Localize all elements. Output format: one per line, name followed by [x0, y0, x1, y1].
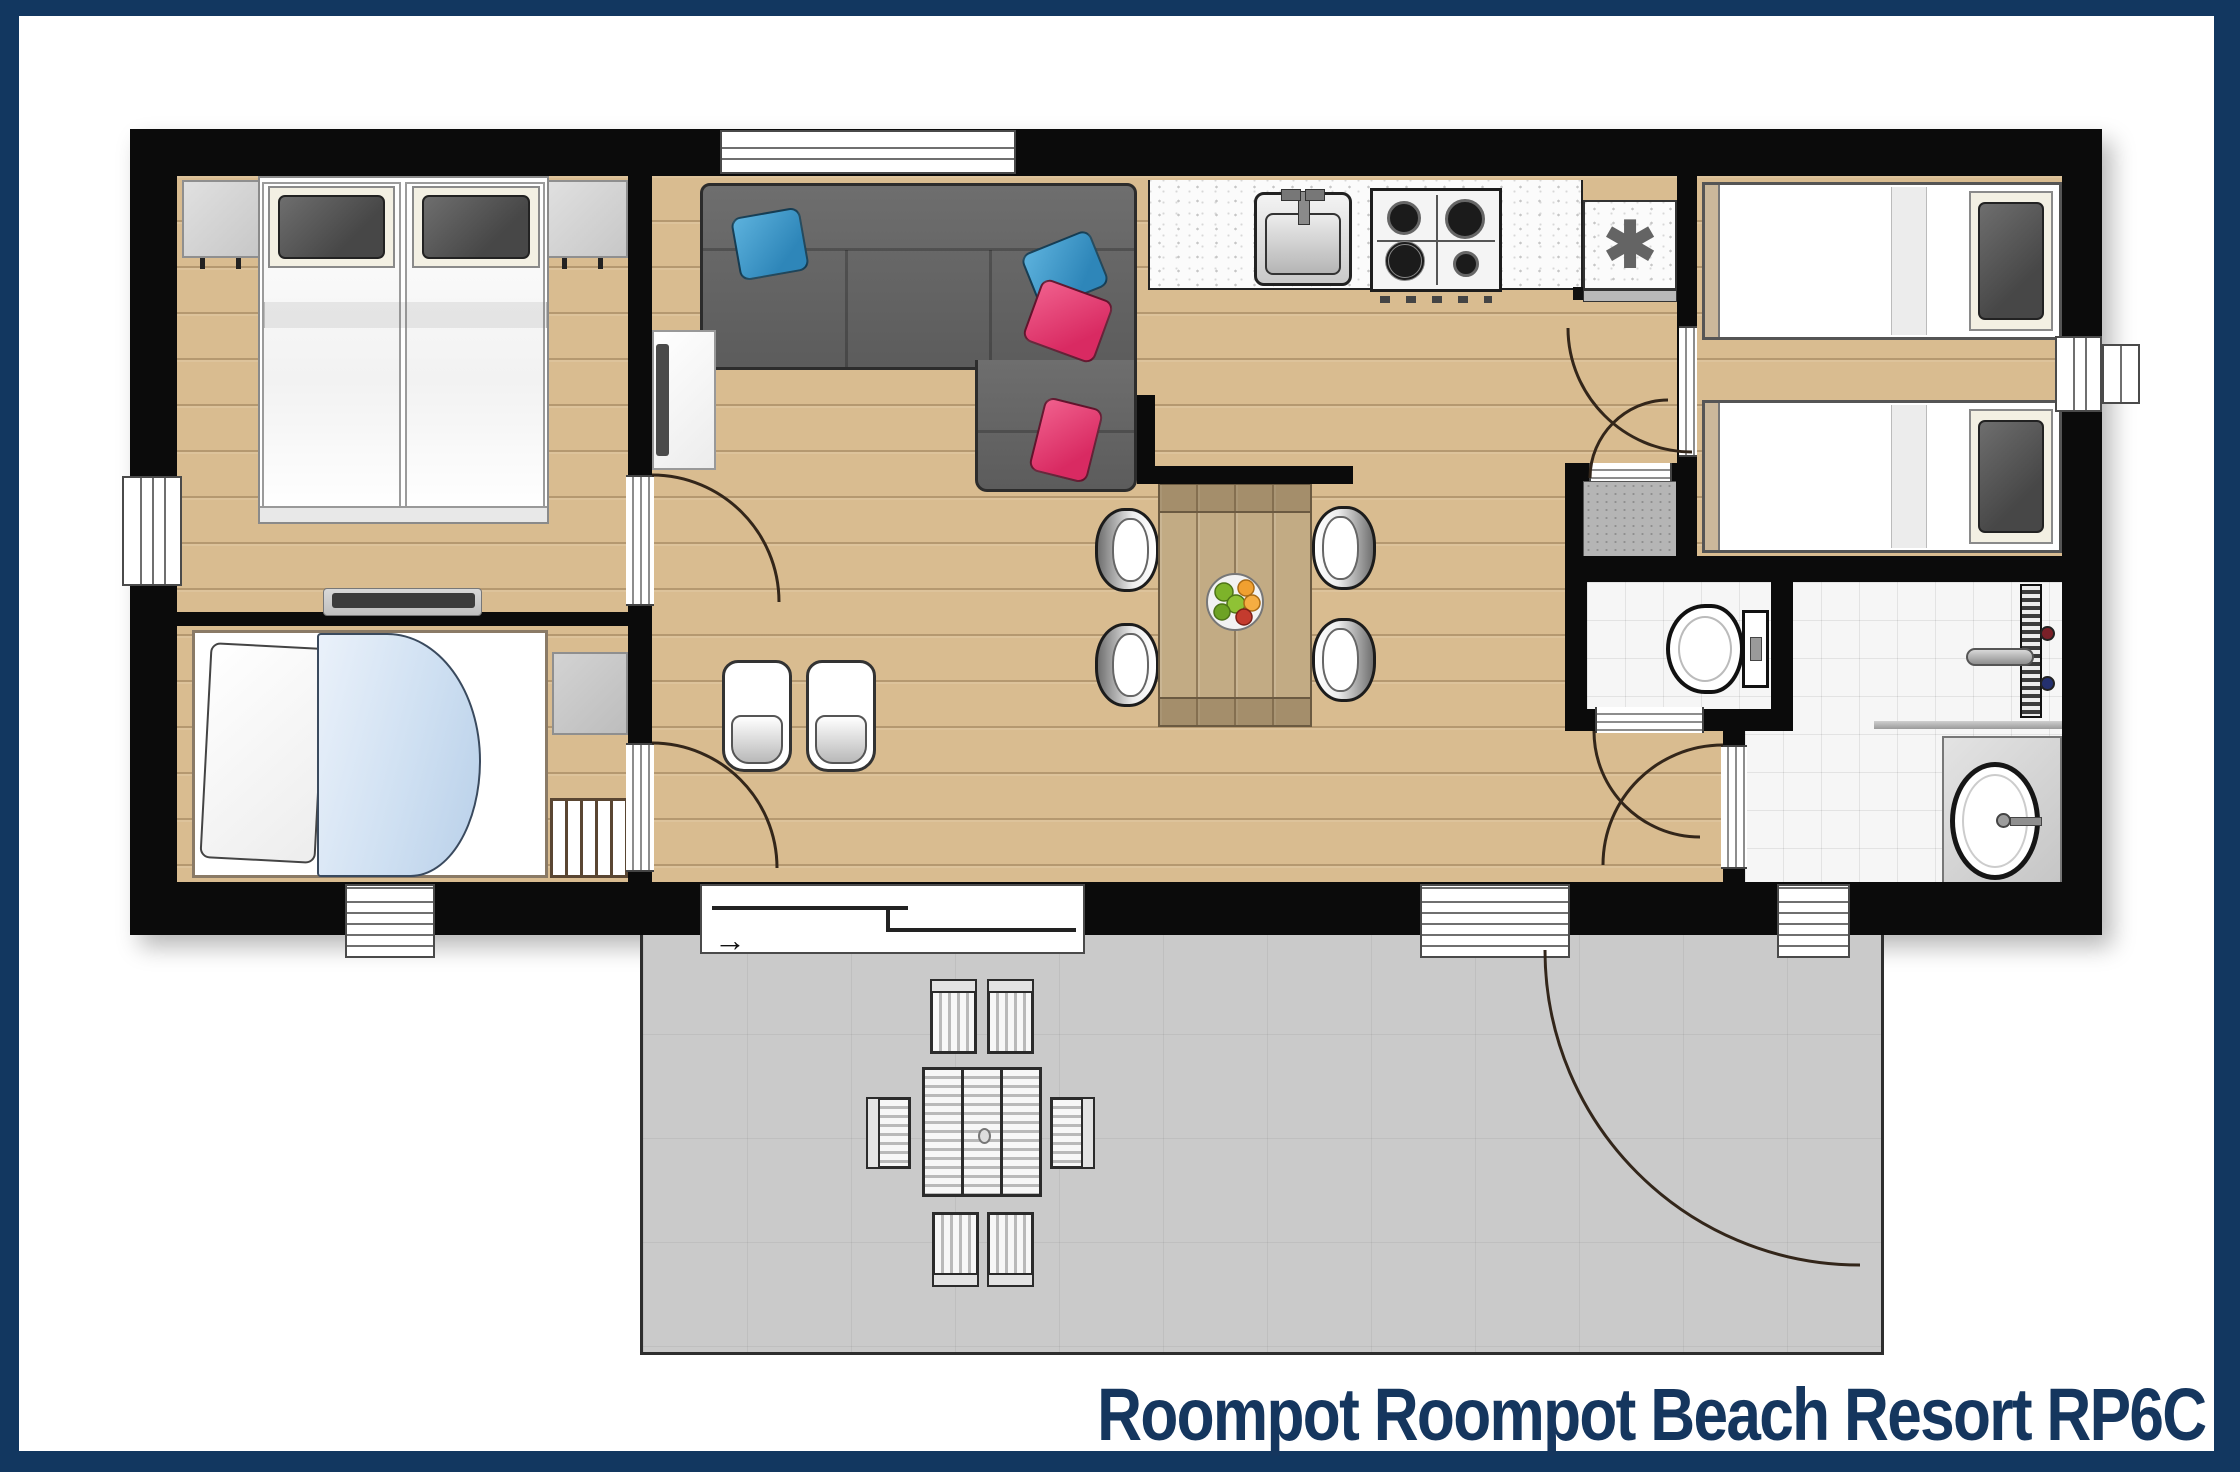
burner-icon [1453, 251, 1479, 277]
stove-knobs [1380, 296, 1492, 303]
sliding-door: → [700, 884, 1085, 954]
cabinet-bedroom3 [552, 652, 628, 735]
terrace-chair-bottom-1 [932, 1212, 979, 1286]
terrace-chair-bottom-2 [987, 1212, 1034, 1286]
window-bottom-bedroom3 [345, 884, 435, 958]
wall-bedrooms-bathroom [1565, 556, 2102, 582]
shower-handle [1966, 648, 2034, 666]
terrace-chair-right [1050, 1097, 1094, 1169]
door-hall-kitchen [1679, 326, 1697, 457]
storage-closet-floor [1583, 481, 1678, 567]
double-bed-bedroom1 [258, 176, 549, 524]
terrace-table [922, 1067, 1042, 1197]
dining-chair-right-1 [1312, 506, 1376, 590]
door-bedroom3 [626, 743, 654, 872]
burner-icon [1445, 199, 1485, 239]
lounge-chair-1 [722, 660, 792, 772]
window-bottom-dining [1420, 884, 1570, 958]
shower-glass-partition [1874, 721, 2062, 729]
dining-chair-right-2 [1312, 618, 1376, 702]
bunk-ladder-icon [550, 798, 628, 878]
single-bed-bedroom5 [1702, 400, 2062, 553]
refrigerator-front [1583, 290, 1677, 302]
terrace-chair-left [867, 1097, 911, 1169]
floor-plan-page: → [0, 0, 2240, 1472]
terrace-chair-top-2 [987, 980, 1034, 1054]
dining-chair-left-2 [1095, 623, 1159, 707]
dining-chair-left-1 [1095, 508, 1159, 592]
burner-icon [1387, 201, 1421, 235]
wall-stub-dining [1137, 466, 1353, 484]
lounge-chair-2 [806, 660, 876, 772]
door-bathroom [1721, 745, 1747, 869]
door-bedroom1 [626, 475, 654, 606]
door-storage-closet [1589, 463, 1672, 481]
wall-exterior-top [130, 129, 2102, 176]
cold-tap-icon [2040, 676, 2055, 691]
terrace [640, 930, 1884, 1355]
tv-bedroom3 [332, 593, 475, 608]
tv-living [656, 344, 669, 456]
single-bed-bedroom3 [192, 630, 548, 878]
window-right-hall-sill [2102, 344, 2140, 404]
hook-icon [200, 258, 205, 269]
dining-table [1158, 483, 1312, 727]
hot-tap-icon [2040, 626, 2055, 641]
blanket-bedroom3 [317, 633, 481, 877]
basin-faucet-arm [2010, 817, 2042, 826]
hook-icon [598, 258, 603, 269]
single-bed-bedroom4 [1702, 182, 2062, 340]
window-top-living [720, 130, 1016, 174]
window-left-bedroom1 [122, 476, 182, 586]
burner-icon [1385, 241, 1425, 281]
wardrobe-bedroom1-left [182, 180, 262, 258]
wall-exterior-right [2062, 129, 2102, 935]
kitchen-sink [1254, 192, 1352, 286]
hook-icon [562, 258, 567, 269]
toilet-bowl [1666, 604, 1744, 694]
door-toilet [1595, 707, 1704, 733]
door-terrace [1777, 884, 1850, 958]
stove-gas-hob [1370, 188, 1502, 292]
wardrobe-bedroom1-right [545, 180, 628, 258]
door-arrow-icon: → [714, 924, 746, 956]
cushion-blue-1 [730, 206, 810, 281]
appliance-asterisk-icon: ✱ [1583, 200, 1677, 290]
basin-faucet-icon [1996, 813, 2011, 828]
pillow-bedroom3 [199, 642, 326, 864]
kitchen-counter [1148, 180, 1583, 290]
window-right-hall [2055, 336, 2102, 412]
page-title: Roompot Roompot Beach Resort RP6C [1098, 1372, 2206, 1457]
toilet-cistern [1742, 610, 1769, 688]
hook-icon [236, 258, 241, 269]
wall-stub-vertical [1137, 395, 1155, 466]
terrace-chair-top-1 [930, 980, 977, 1054]
